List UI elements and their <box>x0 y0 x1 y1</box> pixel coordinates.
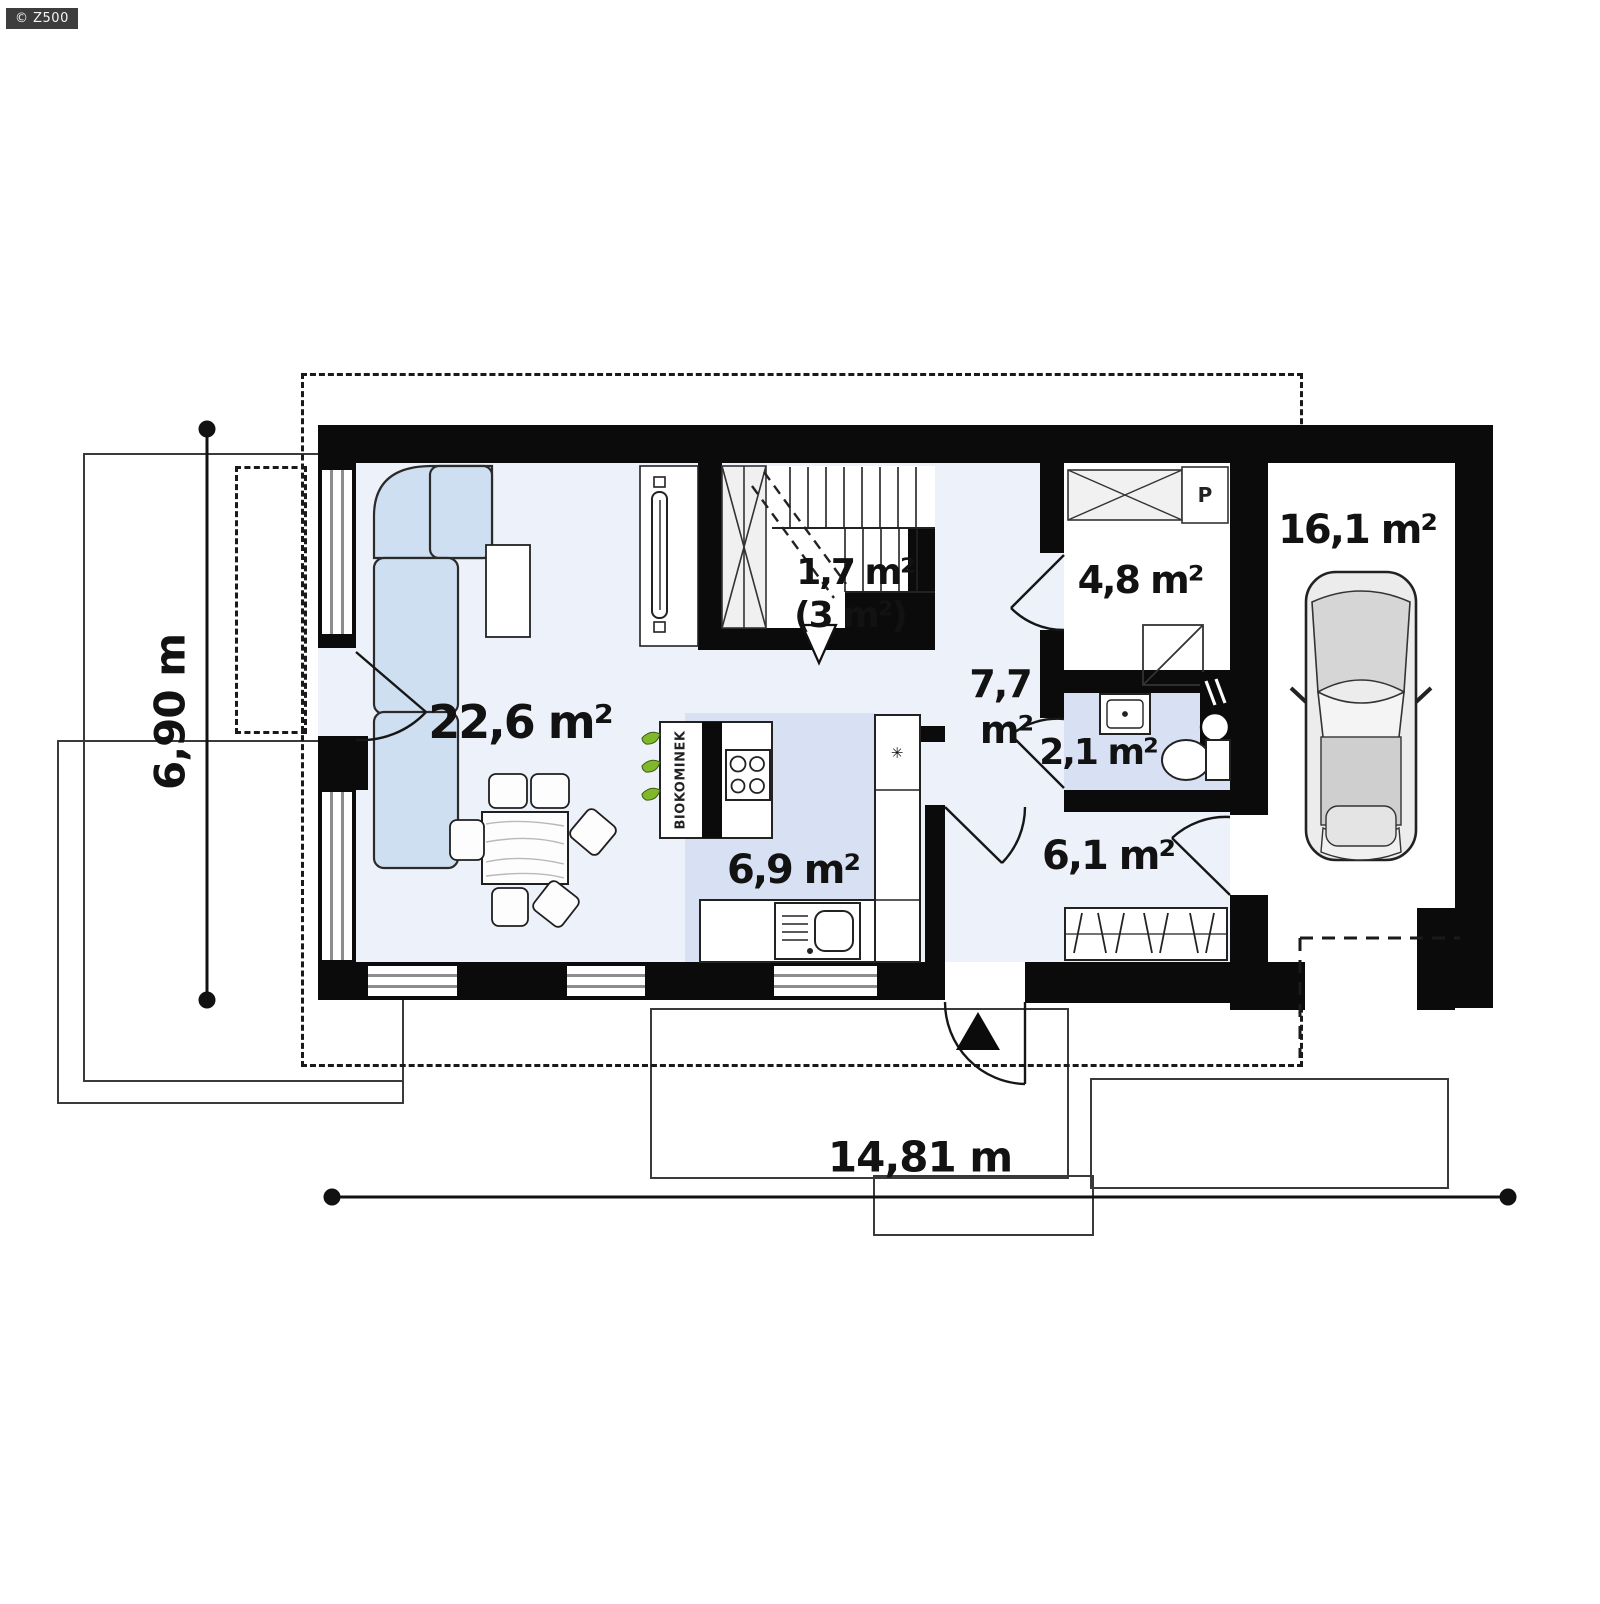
plan-linework <box>0 0 1600 1604</box>
entrance-arrow-icon <box>956 1012 1000 1050</box>
room-label-stair-storage-sub: (3 m²) <box>794 598 906 634</box>
bathroom-radiator <box>1200 672 1230 746</box>
room-label-hall-line2: m² <box>980 711 1032 749</box>
sofa <box>374 466 492 868</box>
dimension-line-depth <box>199 421 215 1008</box>
room-label-entry: 6,1 m² <box>1042 836 1174 876</box>
toilet <box>1162 740 1230 780</box>
coffee-table <box>486 545 530 637</box>
roof-overhang-garage-dash <box>1300 938 1460 1058</box>
room-label-living: 22,6 m² <box>428 699 612 745</box>
shower <box>1143 625 1203 685</box>
room-label-garage: 16,1 m² <box>1278 510 1436 550</box>
floor-plan-canvas: © Z500 <box>0 0 1600 1604</box>
leaf-icon <box>642 732 660 800</box>
closet-icon <box>722 466 766 628</box>
room-label-bathroom: 2,1 m² <box>1039 735 1157 771</box>
washing-machine-label: P <box>1198 483 1213 507</box>
room-label-kitchen: 6,9 m² <box>727 850 859 890</box>
dimension-line-width <box>324 1189 1516 1205</box>
bathroom-sink <box>1100 694 1150 734</box>
room-label-hall-line1: 7,7 <box>969 665 1030 703</box>
wardrobe-entry <box>1065 908 1227 960</box>
radiator <box>640 466 698 646</box>
dimension-label-width: 14,81 m <box>828 1133 1012 1182</box>
kitchen-sink <box>775 903 860 959</box>
fridge-star-icon: ✳ <box>891 744 904 762</box>
car <box>1291 572 1431 860</box>
fireplace-label: BIOKOMINEK <box>674 731 689 830</box>
room-label-utility: 4,8 m² <box>1078 561 1203 599</box>
dining-table <box>450 774 618 929</box>
stove <box>726 750 770 800</box>
dimension-label-depth: 6,90 m <box>146 634 195 790</box>
room-label-stair-storage: 1,7 m² <box>796 555 914 591</box>
